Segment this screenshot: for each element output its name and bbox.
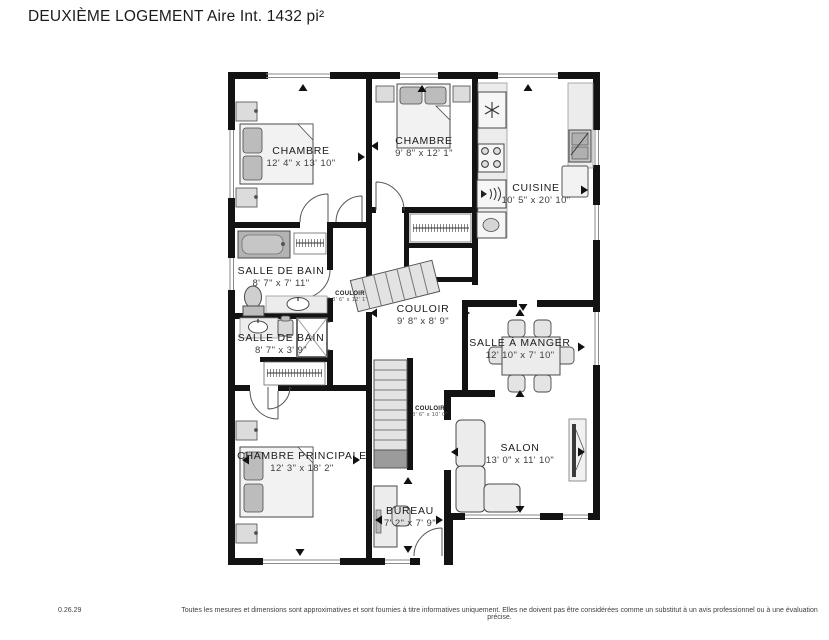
bathtub-icon xyxy=(238,231,290,258)
bed-icon xyxy=(397,84,450,148)
shower-icon xyxy=(297,318,327,357)
kitchen-sink-icon xyxy=(569,130,591,162)
desk-chair-icon xyxy=(392,506,410,526)
version-number: 0.26.29 xyxy=(58,607,81,614)
dishwasher-icon xyxy=(477,180,506,208)
footer: 0.26.29 Toutes les mesures et dimensions… xyxy=(0,604,829,618)
toilet-icon xyxy=(243,286,264,316)
vanity-sink-icon xyxy=(266,296,327,313)
fridge-icon xyxy=(478,92,506,128)
stairs-angled-icon xyxy=(350,260,439,311)
dining-table-icon xyxy=(502,337,560,375)
bed-icon xyxy=(240,447,313,517)
bed-icon xyxy=(240,124,313,184)
stairs-down-icon xyxy=(374,360,407,468)
small-sink-icon xyxy=(477,212,506,238)
floor-plan: CHAMBRE 12' 4" x 13' 10" CHAMBRE 9' 8" x… xyxy=(0,0,829,640)
vanity-sink-icon xyxy=(240,318,278,338)
stove-icon xyxy=(478,144,504,172)
floorplan-page: DEUXIÈME LOGEMENT Aire Int. 1432 pi² xyxy=(0,0,829,640)
tv-icon xyxy=(569,419,586,481)
sofa-icon xyxy=(456,420,520,512)
disclaimer-text: Toutes les mesures et dimensions sont ap… xyxy=(180,607,819,621)
